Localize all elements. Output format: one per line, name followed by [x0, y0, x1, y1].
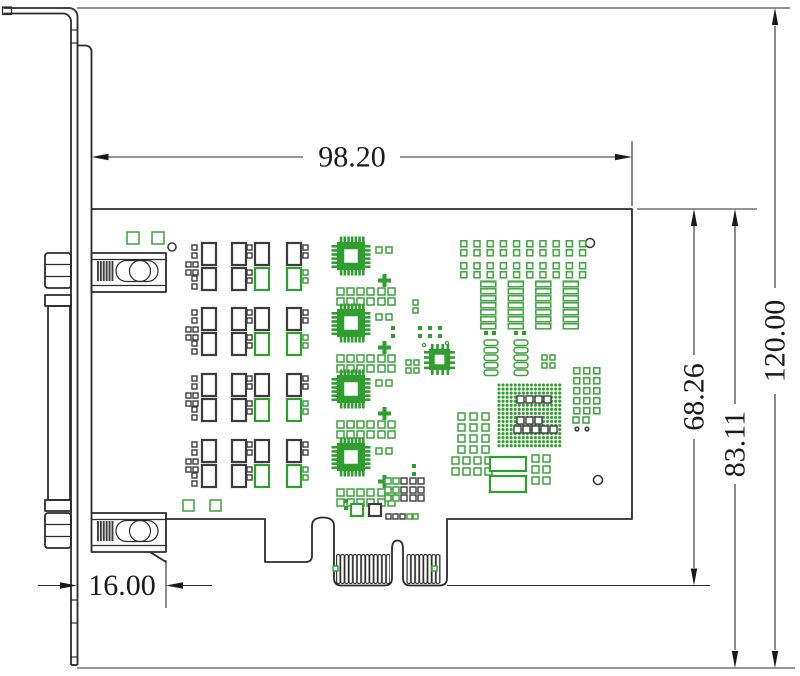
capacitor-stacks: [484, 331, 555, 376]
dim-label-overall-height: 120.00: [759, 300, 792, 383]
dim-label-pcb-length: 98.20: [318, 141, 386, 174]
corner-chamfer: [150, 552, 166, 562]
dim-label-bracket-offset: 16.00: [88, 569, 156, 602]
pcb-components: [127, 232, 603, 519]
passive-field: [459, 239, 592, 283]
resistor-arrays: [479, 280, 579, 330]
dsub-body: [48, 306, 70, 500]
dimension-bracket-offset: 16.00: [38, 569, 212, 602]
screw-thread: [97, 521, 113, 541]
bga-chip: [497, 383, 562, 448]
bracket: [3, 7, 92, 665]
dsub-connector: [45, 253, 71, 548]
pcb-dimension-drawing: 98.20 120.00 83.11 68.26: [0, 0, 800, 676]
dimension-overall-height: 120.00: [759, 8, 792, 668]
jackscrew-hex-bottom: [45, 513, 71, 548]
screw-thread: [97, 261, 113, 281]
jackscrew-assembly-bottom: [92, 513, 167, 562]
dimension-pcb-length: 98.20: [92, 141, 633, 174]
dim-label-board-height-with-fingers: 83.11: [719, 411, 752, 477]
mounting-hole: [594, 476, 603, 485]
dim-label-board-height: 68.26: [678, 363, 711, 431]
bracket-plate: [78, 46, 92, 514]
dimension-board-height: 68.26: [678, 209, 711, 586]
right-pad-field: [572, 366, 602, 431]
jackscrew-assembly-top: [92, 253, 167, 292]
drawing-page: 98.20 120.00 83.11 68.26: [0, 0, 800, 676]
edge-connector-fingers: [333, 554, 441, 584]
dimension-board-height-with-fingers: 83.11: [719, 209, 752, 668]
qfp-chips: [332, 237, 396, 507]
mounting-hole: [168, 243, 176, 251]
jackscrew-hex-top: [45, 253, 71, 288]
transformer-pad-block: [186, 243, 308, 487]
qfn-chip: [391, 326, 455, 375]
